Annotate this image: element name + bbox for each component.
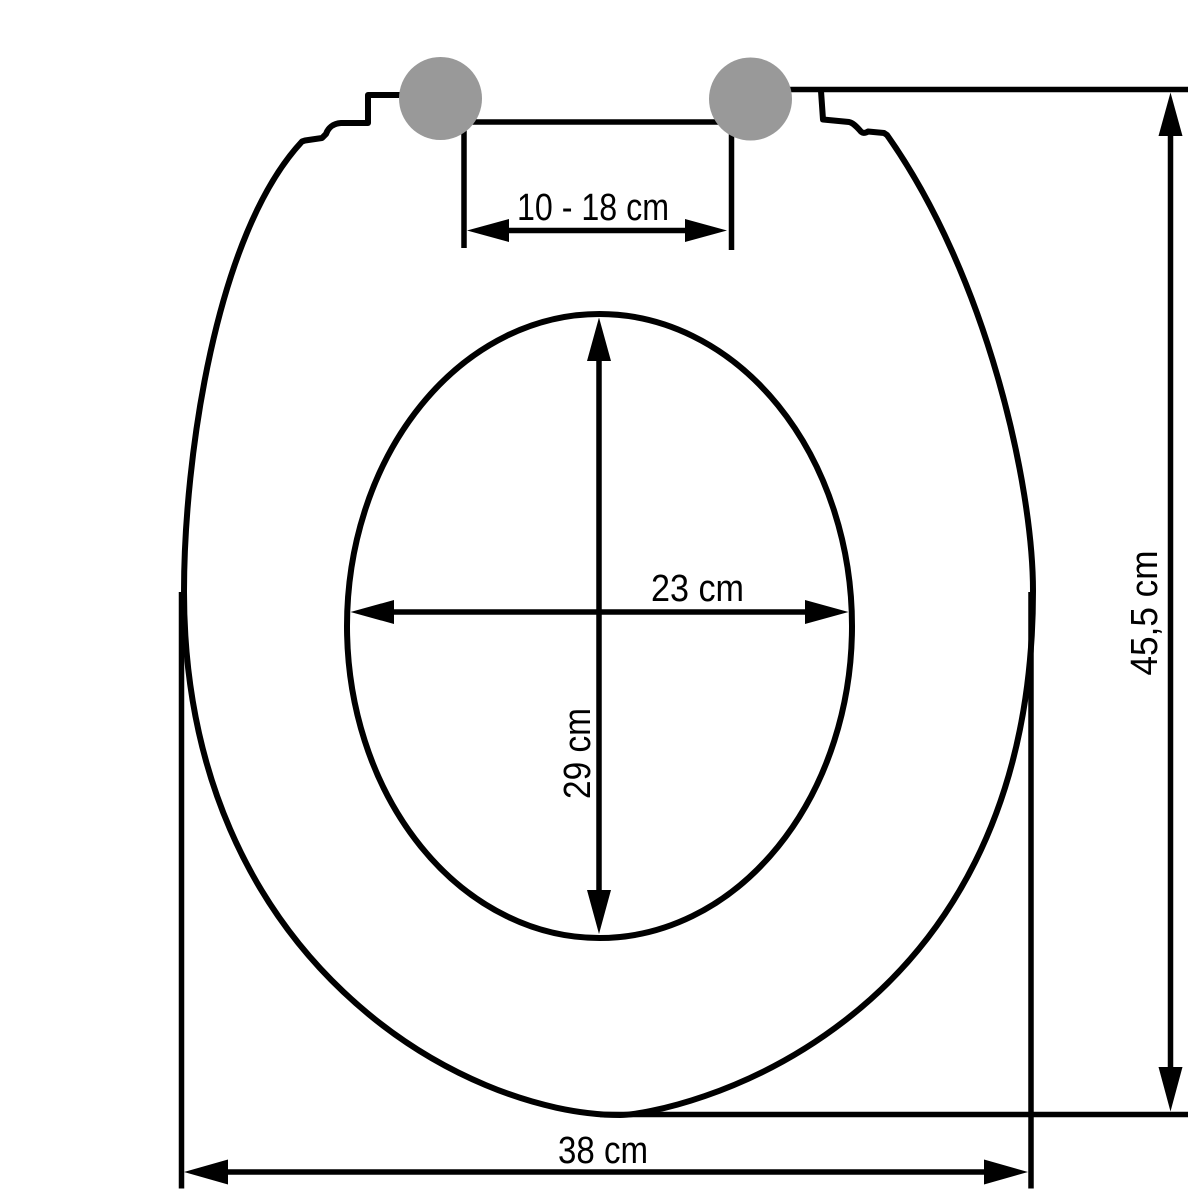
svg-text:38 cm: 38 cm — [558, 1130, 648, 1172]
svg-text:29 cm: 29 cm — [557, 708, 599, 799]
svg-text:45,5 cm: 45,5 cm — [1124, 551, 1166, 676]
svg-text:23 cm: 23 cm — [651, 568, 744, 610]
svg-text:10 - 18 cm: 10 - 18 cm — [517, 187, 669, 229]
